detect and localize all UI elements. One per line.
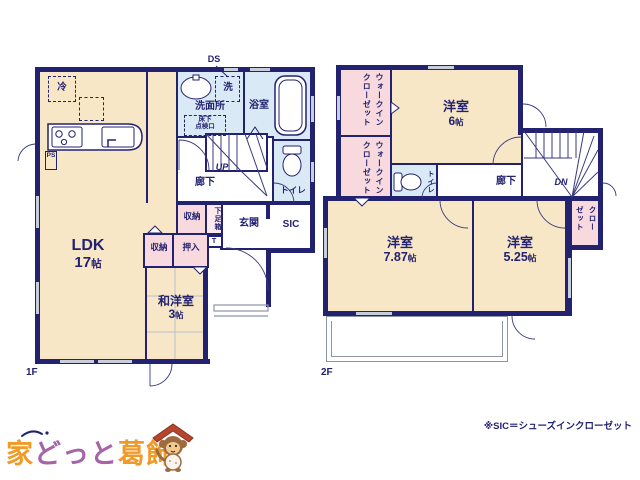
toilet-1f-label: トイレ [276,186,310,195]
wall-2f-left-top [336,65,341,201]
yoshitsu787-size-unit: 帖 [408,253,417,263]
yoshitsu525-size-unit: 帖 [528,253,537,263]
room-ldk-passage [146,203,178,235]
yoshitsu787-name: 洋室 [387,235,413,250]
window-1f-right-toilet [311,162,314,182]
wall-1f-sic-divider [266,203,270,219]
window-1f-bottom-a [60,360,94,363]
window-1f-top-b [250,68,270,71]
wall-2f-closet-bottom [565,245,603,250]
wall-1f-hall-bottom [176,201,315,205]
wall-2f-closet-right [598,196,603,250]
window-2f-right-525 [568,258,571,298]
yoshitsu6-name: 洋室 [443,99,469,114]
yoshitsu787-label: 洋室 7.87帖 [370,236,430,264]
hall-2f-label: 廊下 [491,177,521,188]
washitsu-label: 和洋室 3帖 [147,295,205,320]
window-1f-bottom-b [98,360,132,363]
wall-1f-right [310,67,315,253]
door-balcony [512,316,535,339]
site-logo: 家どっと葛飾 [6,432,174,471]
yoshitsu787-size: 7.87 [383,250,407,264]
up-label: UP [210,163,234,172]
wall-1f-genkan-bottom [266,248,315,253]
shuno-b-label: 収納 [144,243,174,252]
logo-part2: どっと [34,439,118,469]
door-ldk-exterior [18,144,35,161]
door-stairs-side [603,183,616,196]
ds-label: DS [202,55,226,64]
closet-2f-label: クローゼット [570,203,598,235]
getabako-label: 下足箱 [208,203,221,235]
washitsu-size-unit: 帖 [175,310,183,320]
yoshitsu6-size-unit: 帖 [455,117,463,127]
dashed-box [79,97,104,121]
washitsu-name: 和洋室 [158,294,194,308]
fridge-label: 冷 [52,83,72,93]
ldk-name: LDK [72,237,105,254]
wall-2f-stairs-right [598,128,603,201]
room-toilet-1f [272,139,314,205]
floor-hatch-line2: 点検口 [195,123,215,130]
ldk-size-unit: 帖 [91,258,102,270]
ldk-size: 17 [74,254,91,271]
yoshitsu525-label: 洋室 5.25帖 [490,236,550,264]
balcony [326,316,508,362]
window-1f-left-b [36,282,39,314]
door-genkan [226,248,268,290]
wic-a-label: ウォークインクローゼット [343,71,385,129]
yoshitsu6-label: 洋室 6帖 [432,100,480,127]
window-2f-left-top [337,96,340,120]
yoshitsu525-name: 洋室 [507,235,533,250]
floor-hatch-label: 床下 点検口 [184,117,226,131]
senmenjo-label: 洗面所 [178,102,242,113]
window-1f-left-a [36,196,39,228]
window-2f-left-bottom [324,228,327,258]
genkan-label: 玄関 [231,219,267,230]
sic-label: SIC [277,220,305,231]
hall-1f-label: 廊下 [186,178,224,189]
window-2f-top [428,66,454,69]
logo-part1: 家 [6,439,34,469]
window-1f-top-a [224,68,238,71]
wall-1f-top [35,67,315,72]
wall-2f-stairs-top [518,128,603,133]
floor2-label: 2F [321,368,343,379]
toilet-2f-label: トイレ [422,166,434,198]
floorplan-page: DS 冷 PS 洗面所 洗 床下 点検口 浴室 トイレ UP 廊下 収納 下足箱… [0,0,640,480]
ps-label: PS [46,152,56,160]
door-yoshitsu6-upper [523,104,546,127]
oshiire-label: 押入 [174,243,208,252]
ldk-label: LDK 17帖 [58,238,118,272]
laundry-label: 洗 [218,83,238,93]
dn-label: DN [548,178,574,187]
wall-1f-porch-right [266,250,271,307]
porch-steps [214,305,268,316]
stairs-2f [521,128,603,201]
yoshitsu525-size: 5.25 [503,250,527,264]
wall-2f-room6-right [518,65,523,135]
window-2f-bottom [356,312,392,315]
sic-footnote: ※SIC＝シューズインクローゼット [430,418,632,432]
shuno-a-label: 収納 [177,212,207,221]
window-1f-right-bath [311,96,314,122]
wic-b-label: ウォークインクローゼット [343,139,385,197]
balcony-inner-line [331,321,503,357]
floor1-label: 1F [26,368,48,379]
bath-label: 浴室 [243,101,275,112]
door-washitsu-exterior [150,364,172,386]
logo-part3: 葛飾 [118,439,174,469]
